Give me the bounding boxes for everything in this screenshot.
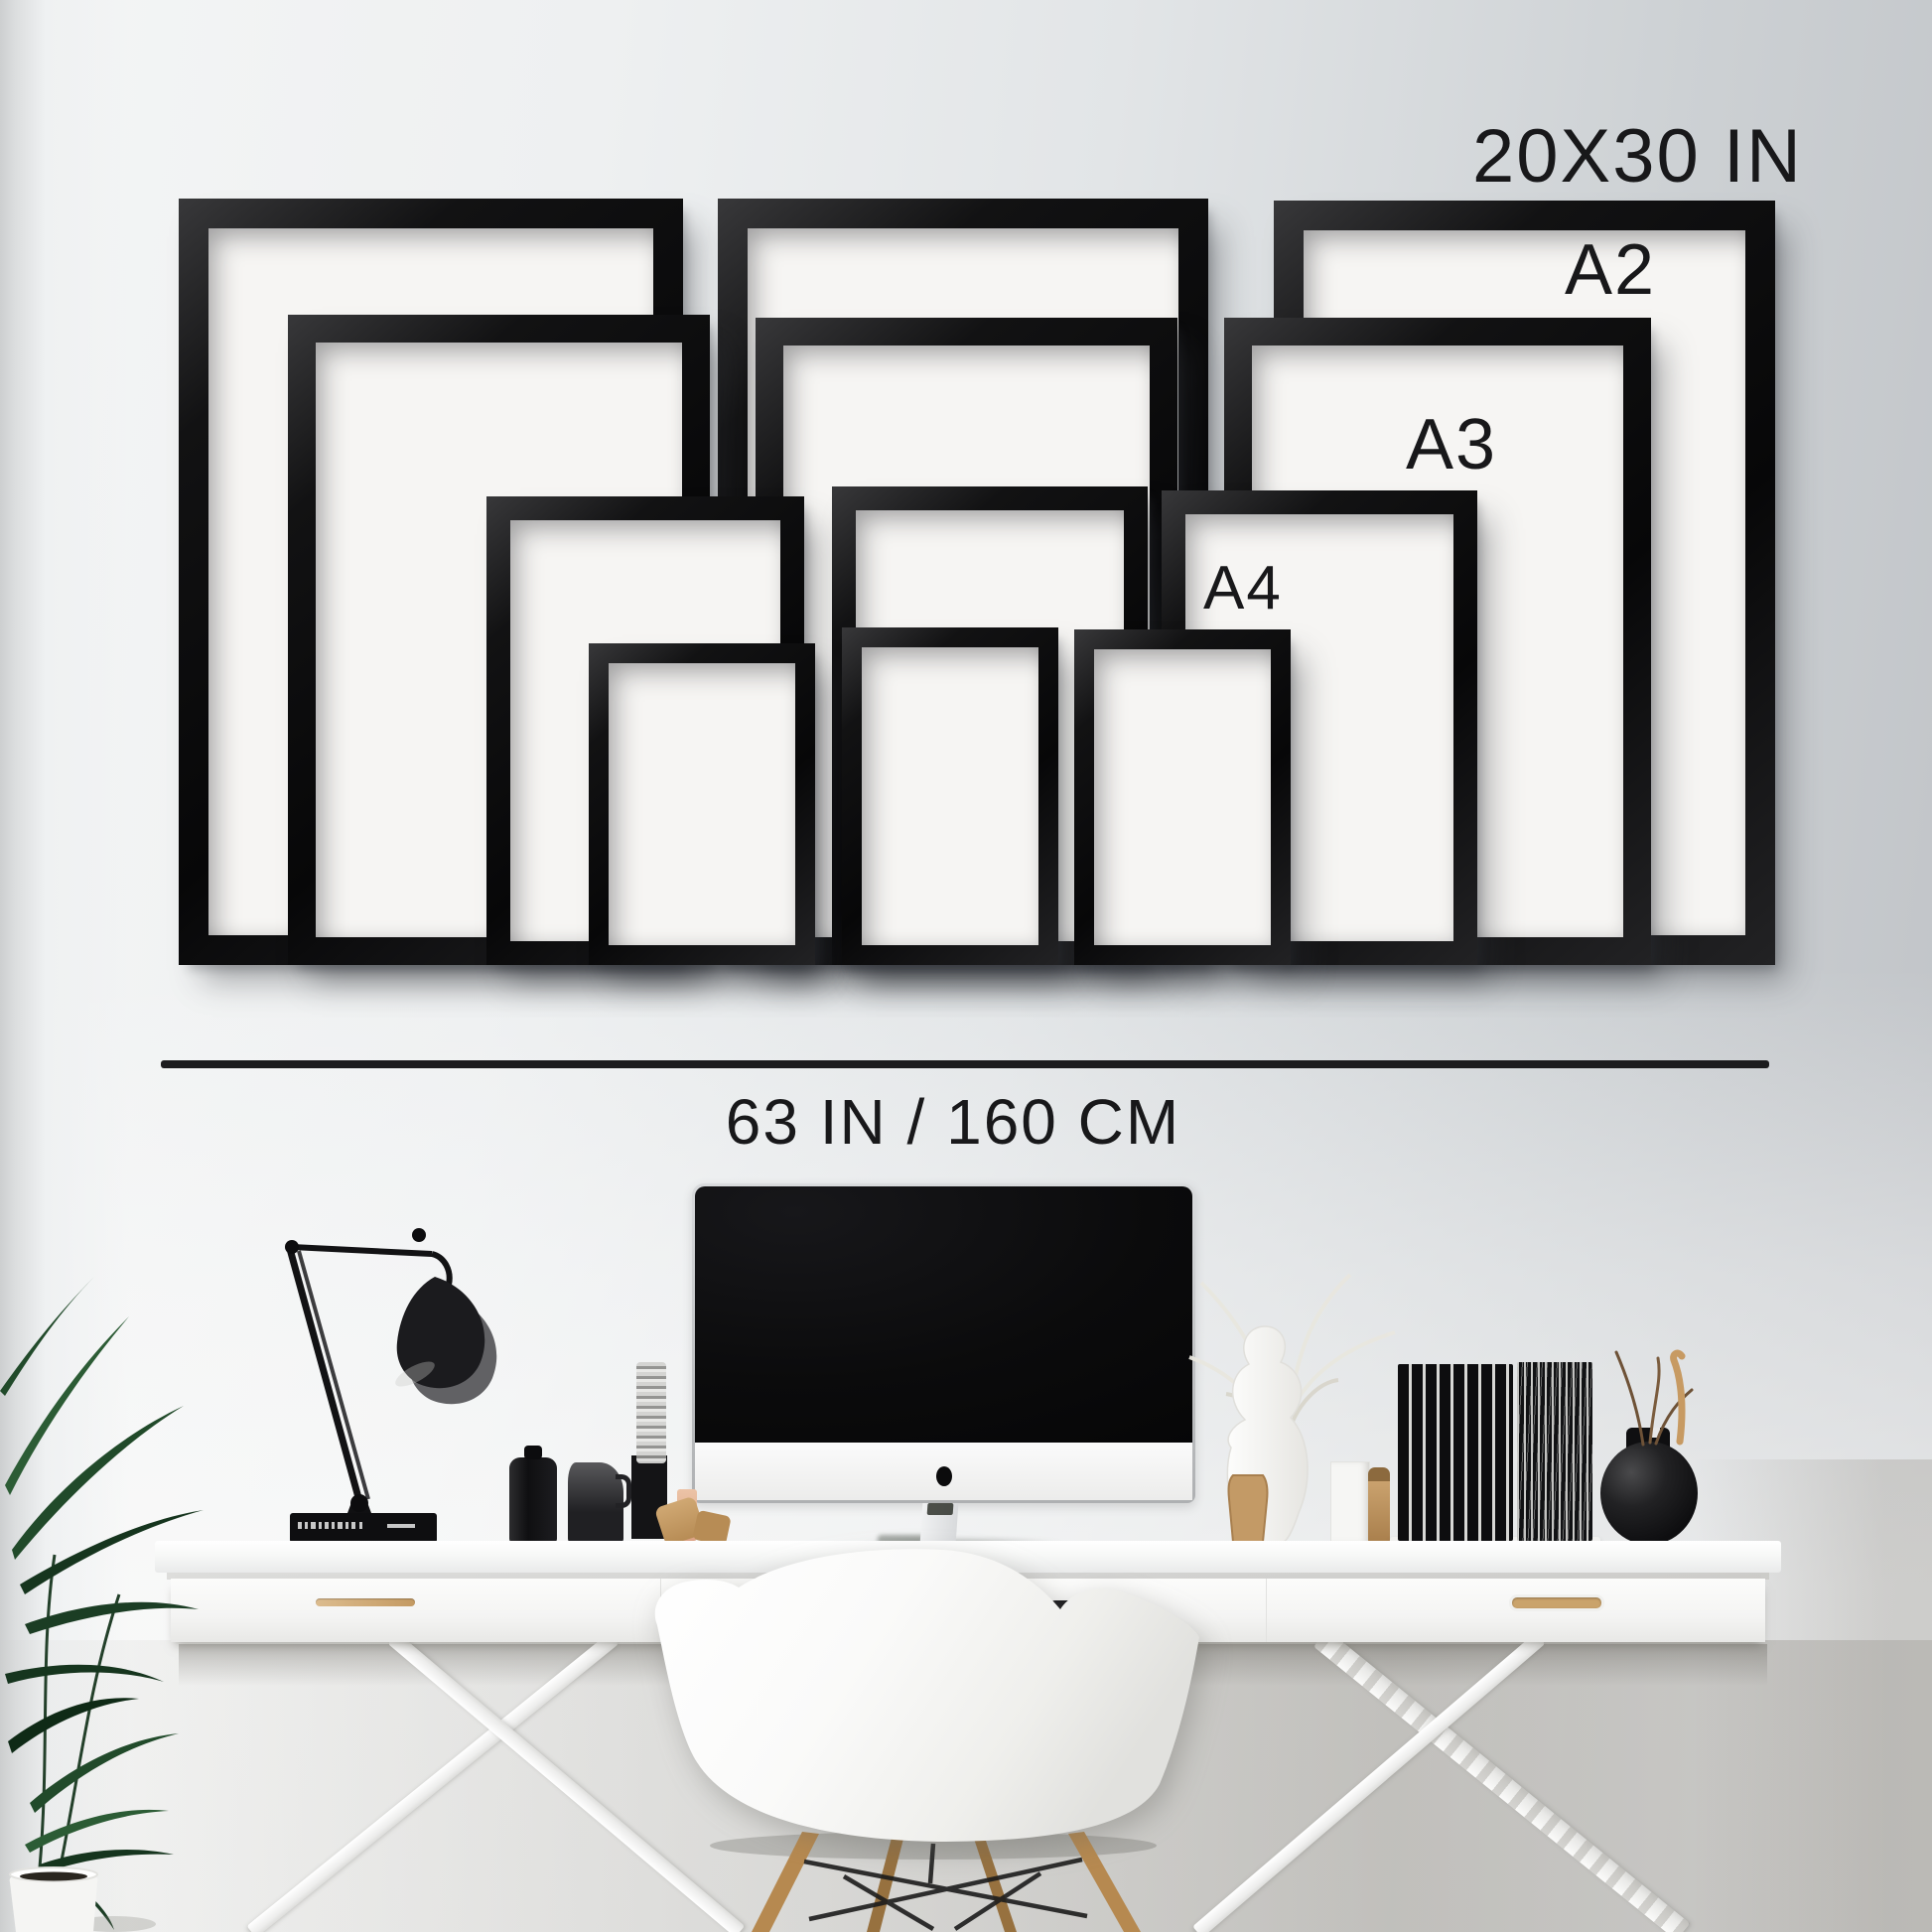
drawer-handle-right — [1509, 1594, 1604, 1611]
frame-a4-center — [842, 627, 1058, 965]
label-a3: A3 — [1406, 409, 1497, 481]
chair-shell — [655, 1549, 1199, 1842]
wooden-brush — [1368, 1467, 1390, 1543]
monitor — [692, 1183, 1195, 1503]
frame-a4-right — [1074, 629, 1291, 965]
label-a2: A2 — [1565, 234, 1656, 306]
logo-dot-icon — [936, 1466, 952, 1486]
round-black-vase — [1600, 1442, 1698, 1545]
monitor-chin — [695, 1443, 1192, 1500]
label-20x30: 20X30 IN — [1472, 119, 1803, 195]
width-measurement-label: 63 IN / 160 CM — [457, 1090, 1449, 1154]
frame-mat — [1094, 649, 1271, 945]
stand-reflection — [927, 1503, 954, 1515]
plant-leaves — [0, 1277, 204, 1930]
width-measurement-line — [161, 1060, 1769, 1068]
glitter-stack — [636, 1362, 666, 1463]
vase-twigs — [1588, 1340, 1708, 1449]
frame-mat — [862, 647, 1038, 945]
lamp-book — [290, 1513, 437, 1543]
plant-pot — [10, 1867, 156, 1932]
frame-mat — [609, 663, 795, 945]
plant — [0, 1257, 228, 1932]
white-box — [1330, 1461, 1370, 1543]
room-scene: 20X30 IN A2 A3 A4 63 IN / 160 CM — [0, 0, 1932, 1932]
chair — [635, 1534, 1231, 1932]
drawer-handle-left — [316, 1598, 415, 1606]
record-stack-black — [1398, 1364, 1513, 1541]
chair-legs — [710, 1832, 1157, 1932]
label-a4: A4 — [1203, 558, 1283, 620]
frame-a4-left — [589, 643, 815, 965]
drawer-seam — [1266, 1579, 1267, 1642]
dried-branches — [1189, 1275, 1395, 1444]
record-stack-striped — [1517, 1362, 1592, 1541]
glass-pitcher — [568, 1462, 623, 1543]
pitcher-handle — [616, 1474, 631, 1508]
monitor-screen — [695, 1186, 1192, 1443]
wooden-cup — [1229, 1475, 1268, 1542]
desk-lamp — [268, 1227, 546, 1555]
lamp-shade — [392, 1277, 496, 1404]
